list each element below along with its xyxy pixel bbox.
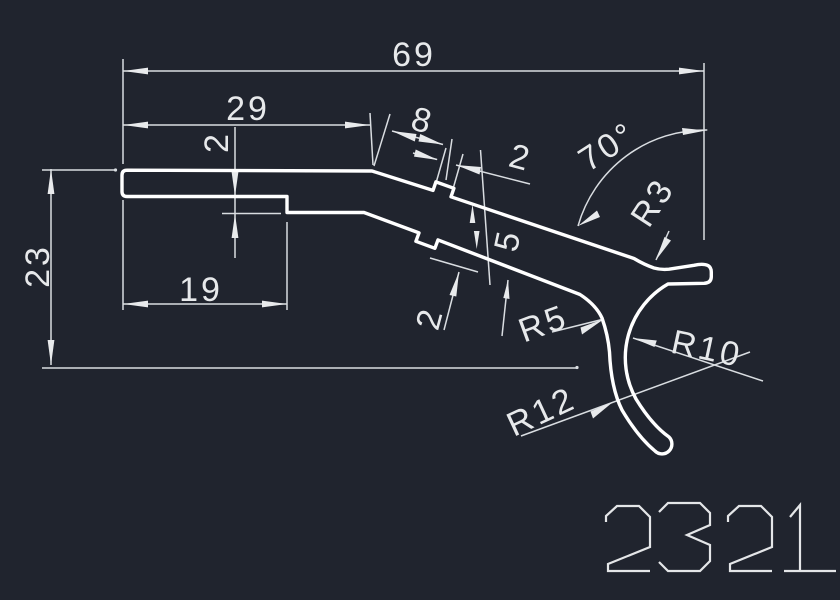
svg-text:29: 29	[226, 90, 270, 128]
svg-text:2: 2	[198, 131, 236, 153]
svg-text:19: 19	[179, 271, 223, 309]
svg-text:23: 23	[19, 244, 57, 288]
svg-text:69: 69	[392, 36, 436, 74]
